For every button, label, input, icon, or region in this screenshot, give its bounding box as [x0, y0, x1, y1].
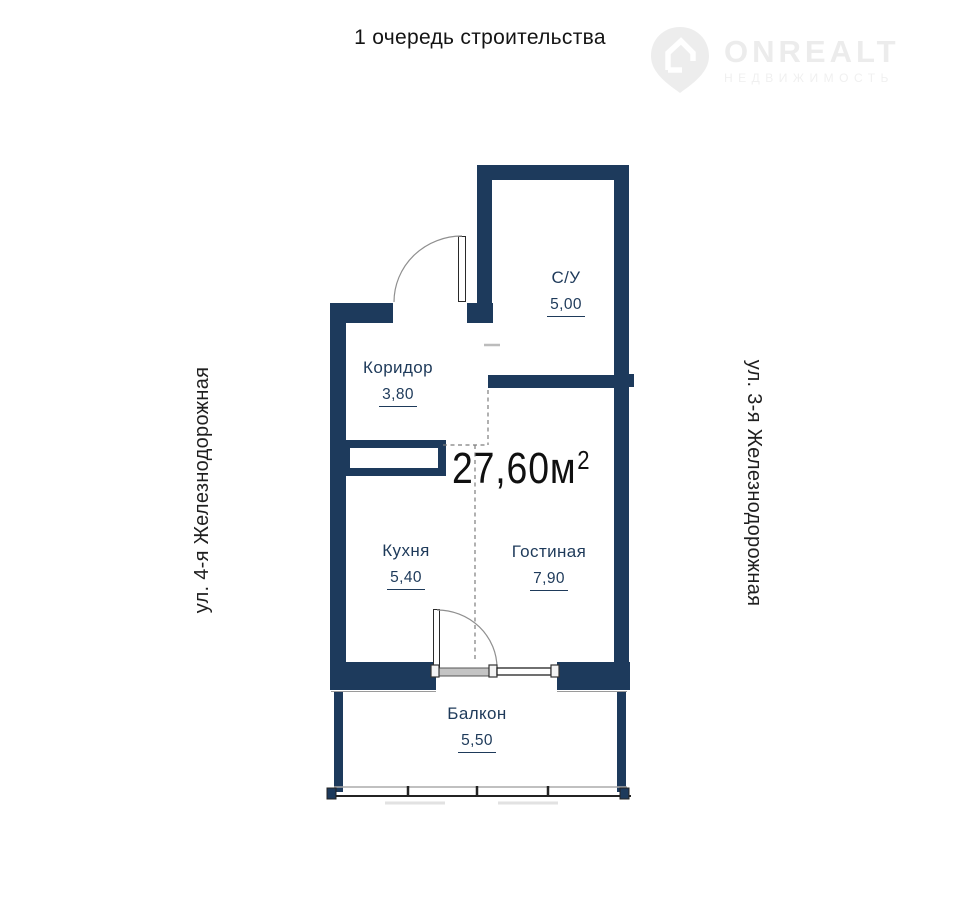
balcony-door-arc — [437, 610, 497, 668]
room-label-balcony: Балкон 5,50 — [417, 704, 537, 753]
room-name: Коридор — [363, 358, 433, 378]
room-name: Гостиная — [512, 542, 587, 562]
room-label-bathroom: С/У 5,00 — [506, 268, 626, 317]
wall-bathroom-left — [477, 165, 492, 323]
kitchen-partition — [342, 440, 446, 476]
balcony-rail-right — [617, 691, 626, 792]
balcony-door-sill — [439, 668, 489, 676]
balcony-door-leaf — [433, 609, 440, 668]
logo-brand: ONREALT — [724, 36, 900, 68]
room-name: Кухня — [382, 541, 430, 561]
room-name: Балкон — [447, 704, 506, 724]
wall-right-tab — [629, 374, 634, 387]
room-label-corridor: Коридор 3,80 — [338, 358, 458, 407]
room-area: 5,00 — [547, 295, 585, 317]
room-name: С/У — [552, 268, 581, 288]
room-label-living: Гостиная 7,90 — [489, 542, 609, 591]
railing-mullions — [408, 786, 548, 797]
room-area: 5,50 — [458, 731, 496, 753]
entrance-door-leaf — [458, 236, 466, 302]
room-area: 3,80 — [379, 385, 417, 407]
total-area-label: 27,60м2 — [452, 444, 590, 494]
logo: ONREALT НЕДВИЖИМОСТЬ — [648, 22, 948, 98]
wall-bathroom-top — [477, 165, 629, 180]
sill-end-right — [489, 665, 497, 677]
wall-right — [614, 165, 629, 690]
wall-bottom-right — [557, 662, 630, 690]
logo-text: ONREALT НЕДВИЖИМОСТЬ — [724, 36, 900, 85]
page-title: 1 очередь строительства — [280, 26, 680, 50]
floor-plan-page: 1 очередь строительства ONREALT НЕДВИЖИМ… — [0, 0, 960, 910]
room-label-kitchen: Кухня 5,40 — [346, 541, 466, 590]
logo-tagline: НЕДВИЖИМОСТЬ — [724, 71, 900, 85]
total-area-value: 27,60м — [452, 444, 576, 493]
wall-bathroom-bottom — [488, 375, 614, 388]
room-area: 5,40 — [387, 568, 425, 590]
entrance-door-arc — [394, 236, 462, 302]
room-area: 7,90 — [530, 569, 568, 591]
dashed-zone-boundary — [443, 390, 488, 661]
street-label-left: ул. 4-я Железнодорожная — [191, 325, 219, 655]
total-area-superscript: 2 — [577, 445, 590, 475]
street-label-right: ул. 3-я Железнодорожная — [737, 318, 765, 648]
wall-entrance-side — [467, 303, 493, 323]
wall-bottom-left — [330, 662, 436, 690]
window — [497, 668, 551, 675]
balcony-rail-left — [334, 691, 343, 792]
